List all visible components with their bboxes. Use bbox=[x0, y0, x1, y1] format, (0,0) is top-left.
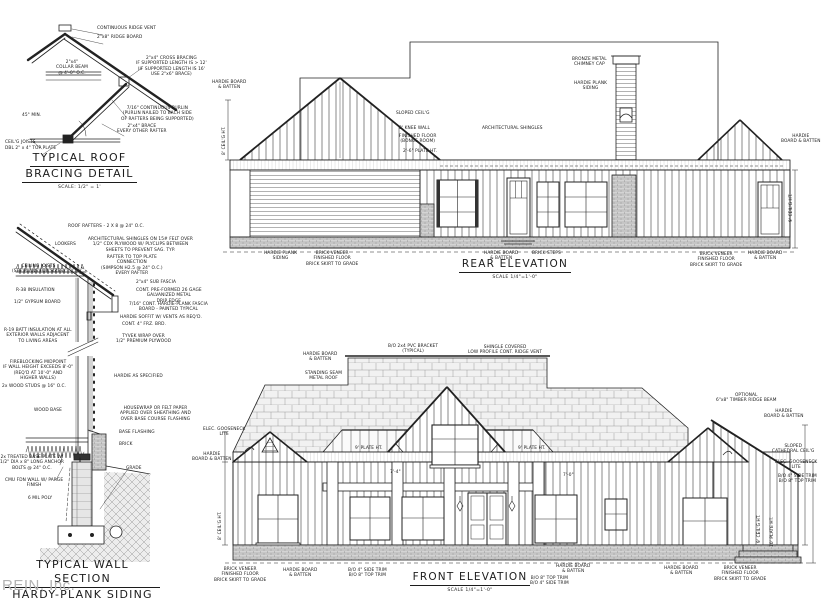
rafter bbox=[18, 228, 113, 295]
rear-window-1 bbox=[437, 180, 478, 227]
collar-beam bbox=[46, 72, 101, 75]
floor-line bbox=[26, 438, 88, 442]
stud-wall bbox=[78, 278, 88, 454]
wall-section-drawing bbox=[0, 222, 210, 567]
rear-elevation-title: REAR ELEVATION bbox=[459, 258, 571, 273]
top-plate bbox=[63, 135, 73, 143]
poly-liner bbox=[66, 468, 70, 522]
left-dim bbox=[225, 100, 231, 160]
front-elevation-title-block: FRONT ELEVATION SCALE 1/4"=1'-0" bbox=[405, 571, 535, 593]
right-dim bbox=[802, 425, 808, 545]
roof-detail-scale: SCALE: 1/2" = 1' bbox=[22, 185, 137, 190]
ceiling-joists bbox=[30, 139, 120, 142]
rear-elevation-drawing bbox=[215, 8, 820, 278]
rear-door-2 bbox=[758, 182, 782, 237]
brick-steps bbox=[735, 545, 801, 563]
watermark: REIN, Inc. bbox=[2, 577, 75, 594]
rear-window-2 bbox=[537, 182, 559, 227]
cmu-foundation bbox=[72, 462, 92, 526]
left-dim bbox=[222, 432, 228, 545]
brick-pedestal bbox=[420, 204, 434, 237]
brick-skirt bbox=[230, 237, 790, 248]
front-elevation-scale: SCALE 1/4"=1'-0" bbox=[405, 588, 535, 593]
front-elevation-drawing bbox=[215, 335, 824, 601]
roof-detail-title-1: TYPICAL ROOF bbox=[30, 151, 130, 167]
blueprint-sheet: TYPICAL ROOF BRACING DETAIL SCALE: 1/2" … bbox=[0, 0, 824, 601]
brick-veneer bbox=[92, 434, 106, 470]
chimney-base bbox=[612, 175, 636, 237]
eave-band bbox=[230, 160, 790, 170]
clapboard-wall bbox=[250, 170, 420, 237]
fascia bbox=[112, 296, 118, 312]
porch-column bbox=[327, 462, 338, 545]
footing bbox=[58, 526, 104, 544]
earth-hatch bbox=[40, 472, 150, 562]
brace bbox=[68, 84, 126, 139]
roof-detail-title-2: BRACING DETAIL bbox=[22, 167, 136, 183]
brick-skirt bbox=[233, 545, 798, 560]
front-door bbox=[468, 493, 506, 545]
ridge-vent bbox=[59, 25, 71, 31]
shingles-line bbox=[20, 224, 115, 291]
porch-column bbox=[444, 462, 455, 545]
rear-window-3 bbox=[565, 182, 607, 227]
rear-elevation-scale: SCALE 1/4"=1'-0" bbox=[450, 275, 580, 280]
right-dim bbox=[792, 170, 798, 248]
rear-elevation-title-block: REAR ELEVATION SCALE 1/4"=1'-0" bbox=[450, 258, 580, 280]
treated-plate bbox=[74, 454, 90, 460]
rear-door bbox=[507, 178, 530, 237]
left-rafter bbox=[28, 34, 65, 60]
drain-pipe bbox=[110, 526, 122, 538]
sheathing bbox=[90, 282, 92, 432]
roof-detail-title-block: TYPICAL ROOF BRACING DETAIL SCALE: 1/2" … bbox=[22, 151, 137, 190]
porch-column bbox=[392, 462, 403, 545]
front-elevation-title: FRONT ELEVATION bbox=[410, 571, 531, 586]
